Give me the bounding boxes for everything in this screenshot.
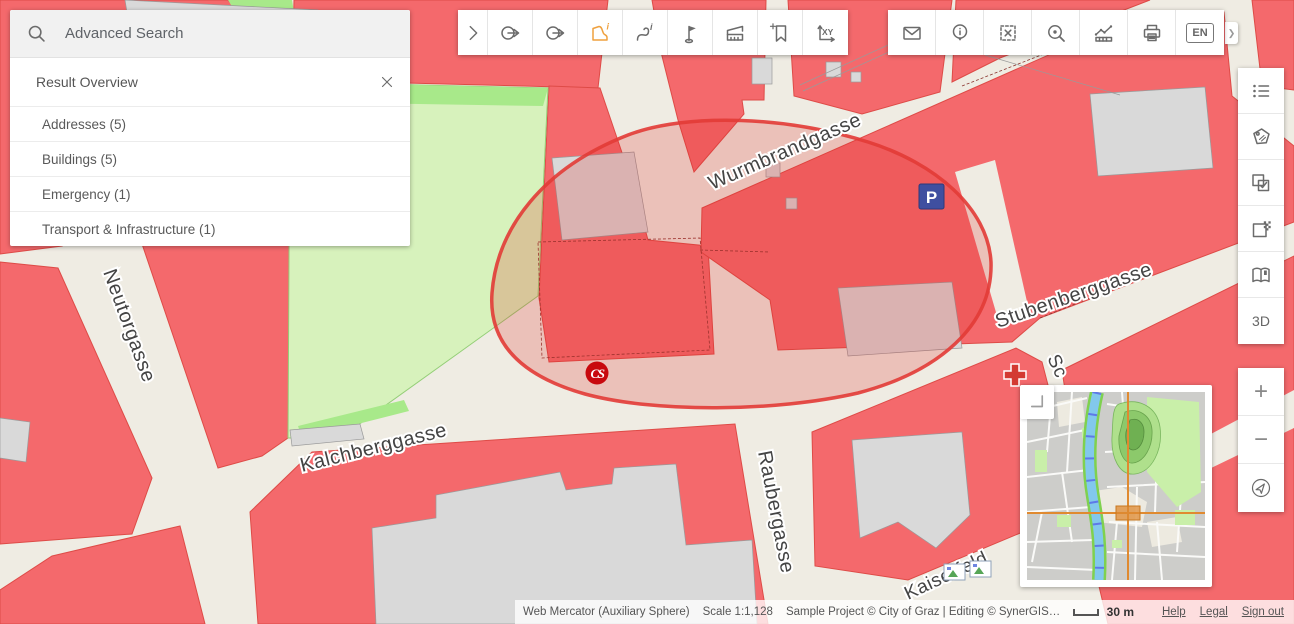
minimap-canvas — [1027, 392, 1205, 580]
minimap-collapse-button[interactable] — [1020, 385, 1054, 419]
clear-selection-button[interactable] — [984, 10, 1032, 55]
flag-marker-icon — [678, 21, 702, 45]
search-placeholder: Advanced Search — [65, 25, 183, 42]
close-icon[interactable] — [378, 73, 396, 91]
view-3d-button[interactable]: 3D — [1238, 298, 1284, 344]
add-bookmark-icon — [768, 21, 792, 45]
search-icon — [26, 23, 47, 44]
identify-line-icon: i — [633, 21, 657, 45]
circle-arrow-icon — [543, 21, 567, 45]
result-row-emergency[interactable]: Emergency (1) — [10, 176, 410, 211]
zoom-in-button[interactable]: + — [1238, 368, 1284, 416]
sidebar-zoom: + − — [1238, 368, 1284, 512]
select-layers-icon — [1249, 171, 1273, 195]
measure-profile-button[interactable] — [1080, 10, 1128, 55]
clear-selection-icon — [996, 21, 1020, 45]
print-icon — [1140, 21, 1164, 45]
labels-tag-icon — [1249, 125, 1273, 149]
zoom-out-button[interactable]: − — [1238, 416, 1284, 464]
result-overview-title: Result Overview — [36, 74, 378, 90]
transparency-button[interactable] — [1238, 206, 1284, 252]
search-panel: Advanced Search Result Overview Addresse… — [10, 10, 410, 246]
info-point-icon — [948, 21, 972, 45]
language-button[interactable]: EN — [1176, 10, 1224, 55]
coordinates-xy-button[interactable]: XY — [803, 10, 848, 55]
result-row-addresses[interactable]: Addresses (5) — [10, 106, 410, 141]
broken-image-icon — [944, 564, 965, 580]
legend-icon — [1249, 79, 1273, 103]
labels-button[interactable] — [1238, 114, 1284, 160]
minus-icon: − — [1254, 426, 1268, 454]
info-point-button[interactable] — [936, 10, 984, 55]
circle-arrow-icon — [498, 21, 522, 45]
identify-polygon-button[interactable]: i — [578, 10, 623, 55]
projection-label: Web Mercator (Auxiliary Sphere) — [523, 606, 690, 618]
result-row-transport[interactable]: Transport & Infrastructure (1) — [10, 211, 410, 246]
select-circle-button[interactable] — [533, 10, 578, 55]
broken-image-icon — [970, 561, 991, 577]
result-list: Addresses (5) Buildings (5) Emergency (1… — [10, 106, 410, 246]
scale-label: Scale 1:1,128 — [703, 606, 773, 618]
flag-marker-button[interactable] — [668, 10, 713, 55]
result-overview-header: Result Overview — [10, 58, 410, 106]
identify-polygon-icon: i — [588, 21, 612, 45]
legal-link[interactable]: Legal — [1200, 606, 1228, 618]
select-circle-remove-button[interactable] — [488, 10, 533, 55]
map-book-button[interactable] — [1238, 252, 1284, 298]
result-row-buildings[interactable]: Buildings (5) — [10, 141, 410, 176]
status-bar: Web Mercator (Auxiliary Sphere) Scale 1:… — [515, 600, 1294, 624]
measure-dimension-icon — [723, 21, 747, 45]
map-application: Wurmbrandgasse Stubenberggasse Neutorgas… — [0, 0, 1294, 624]
plus-icon: + — [1254, 378, 1268, 406]
svg-text:i: i — [607, 21, 610, 31]
map-book-icon — [1249, 263, 1273, 287]
help-link[interactable]: Help — [1162, 606, 1186, 618]
expand-toolbar-button[interactable] — [458, 10, 488, 55]
scale-bar — [1073, 609, 1098, 616]
zoom-point-icon — [1044, 21, 1068, 45]
toolbar-expand-notch[interactable]: ❯ — [1225, 22, 1238, 44]
main-toolbar: i i XY — [458, 10, 848, 55]
search-input[interactable]: Advanced Search — [10, 10, 410, 58]
car-sharing-marker[interactable]: CS — [586, 362, 609, 385]
coordinates-xy-icon: XY — [814, 21, 838, 45]
zoom-point-button[interactable] — [1032, 10, 1080, 55]
measure-dimension-button[interactable] — [713, 10, 758, 55]
select-layers-button[interactable] — [1238, 160, 1284, 206]
add-bookmark-button[interactable] — [758, 10, 803, 55]
sidebar-tools: 3D — [1238, 68, 1284, 344]
locate-arrow-icon — [1249, 476, 1273, 500]
scale-bar-label: 30 m — [1107, 605, 1134, 619]
mail-button[interactable] — [888, 10, 936, 55]
svg-text:XY: XY — [822, 27, 834, 37]
measure-profile-icon — [1092, 21, 1116, 45]
transparency-icon — [1249, 217, 1273, 241]
collapse-corner-icon — [1025, 390, 1049, 414]
language-label: EN — [1186, 23, 1213, 43]
overview-minimap[interactable] — [1020, 385, 1212, 587]
svg-text:CS: CS — [591, 366, 605, 381]
locate-button[interactable] — [1238, 464, 1284, 512]
svg-text:i: i — [650, 22, 653, 32]
svg-text:P: P — [926, 188, 937, 207]
sign-out-link[interactable]: Sign out — [1242, 606, 1284, 618]
legend-button[interactable] — [1238, 68, 1284, 114]
identify-line-button[interactable]: i — [623, 10, 668, 55]
parking-marker[interactable]: P — [919, 184, 944, 209]
secondary-toolbar: EN — [888, 10, 1224, 55]
chevron-right-icon — [462, 22, 484, 44]
print-button[interactable] — [1128, 10, 1176, 55]
copyright-label: Sample Project © City of Graz | Editing … — [786, 606, 1060, 618]
mail-icon — [900, 21, 924, 45]
